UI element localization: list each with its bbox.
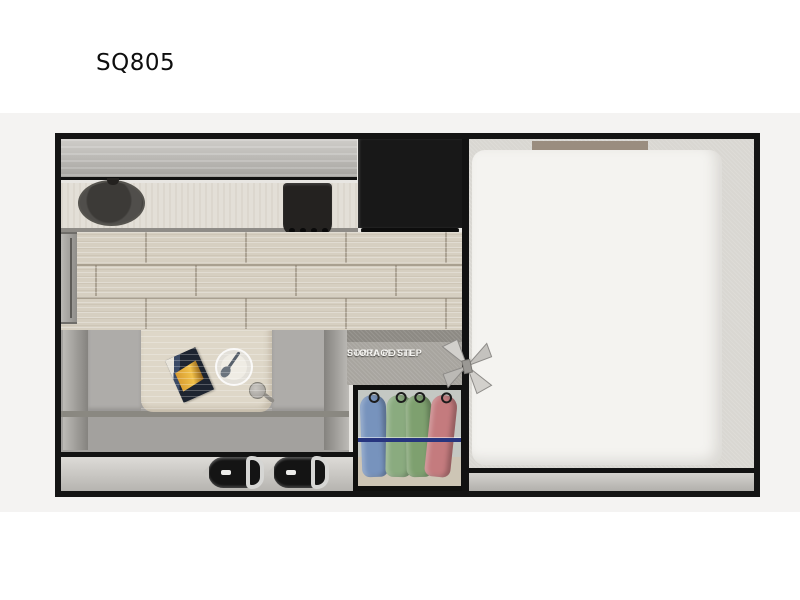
floor-seam: [61, 297, 462, 299]
sofa-cushion-right: [272, 330, 327, 411]
wood-floor: [61, 232, 462, 330]
refrigerator: [358, 139, 462, 228]
floorplan-frame: PORTA POTTI STORAGE STEP: [55, 133, 760, 497]
floor-seam: [295, 265, 297, 296]
bumper-right: [469, 473, 754, 491]
floor-seam: [445, 298, 447, 329]
rear-step: [270, 455, 330, 491]
spoon: [224, 351, 240, 372]
wardrobe-interior: [358, 390, 461, 486]
floor-seam: [245, 298, 247, 329]
porta-potti-label-line2: STORAGE STEP: [347, 347, 422, 359]
floor-seam: [61, 264, 462, 266]
step-slot: [221, 470, 231, 475]
rear-step: [205, 455, 265, 491]
step-ring: [246, 456, 264, 489]
headboard-strip: [532, 141, 648, 150]
sofa-armrest-left: [63, 330, 88, 450]
floor-seam: [195, 265, 197, 296]
sink: [78, 180, 145, 226]
plate: [215, 348, 253, 386]
floor-seam: [245, 232, 247, 263]
dinette-table: [141, 330, 272, 412]
floor-seam: [395, 265, 397, 296]
floor-seam: [95, 265, 97, 296]
wardrobe-rod: [358, 438, 461, 442]
floor-seam: [345, 232, 347, 263]
step-slot: [286, 470, 296, 475]
magazine: [165, 347, 214, 402]
floor-seam: [145, 298, 147, 329]
dividing-wall: [462, 139, 469, 491]
floor-seam: [345, 298, 347, 329]
vent-fan-icon: [440, 333, 495, 400]
dinette-sofa: [61, 330, 349, 452]
sofa-cushion-left: [88, 330, 141, 411]
floorplan-model-label: SQ805: [96, 50, 175, 76]
bed-area: [469, 139, 754, 491]
overhead-cabinet: [61, 139, 357, 180]
floor-seam: [145, 232, 147, 263]
cooktop: [283, 183, 332, 236]
ladle: [249, 382, 266, 399]
bed: [472, 150, 722, 465]
step-ring: [311, 456, 329, 489]
sofa-armrest-right: [324, 330, 349, 450]
entry-door: [61, 232, 77, 324]
garment-blue: [360, 395, 389, 478]
floor-seam: [445, 232, 447, 263]
wardrobe: [353, 385, 466, 491]
